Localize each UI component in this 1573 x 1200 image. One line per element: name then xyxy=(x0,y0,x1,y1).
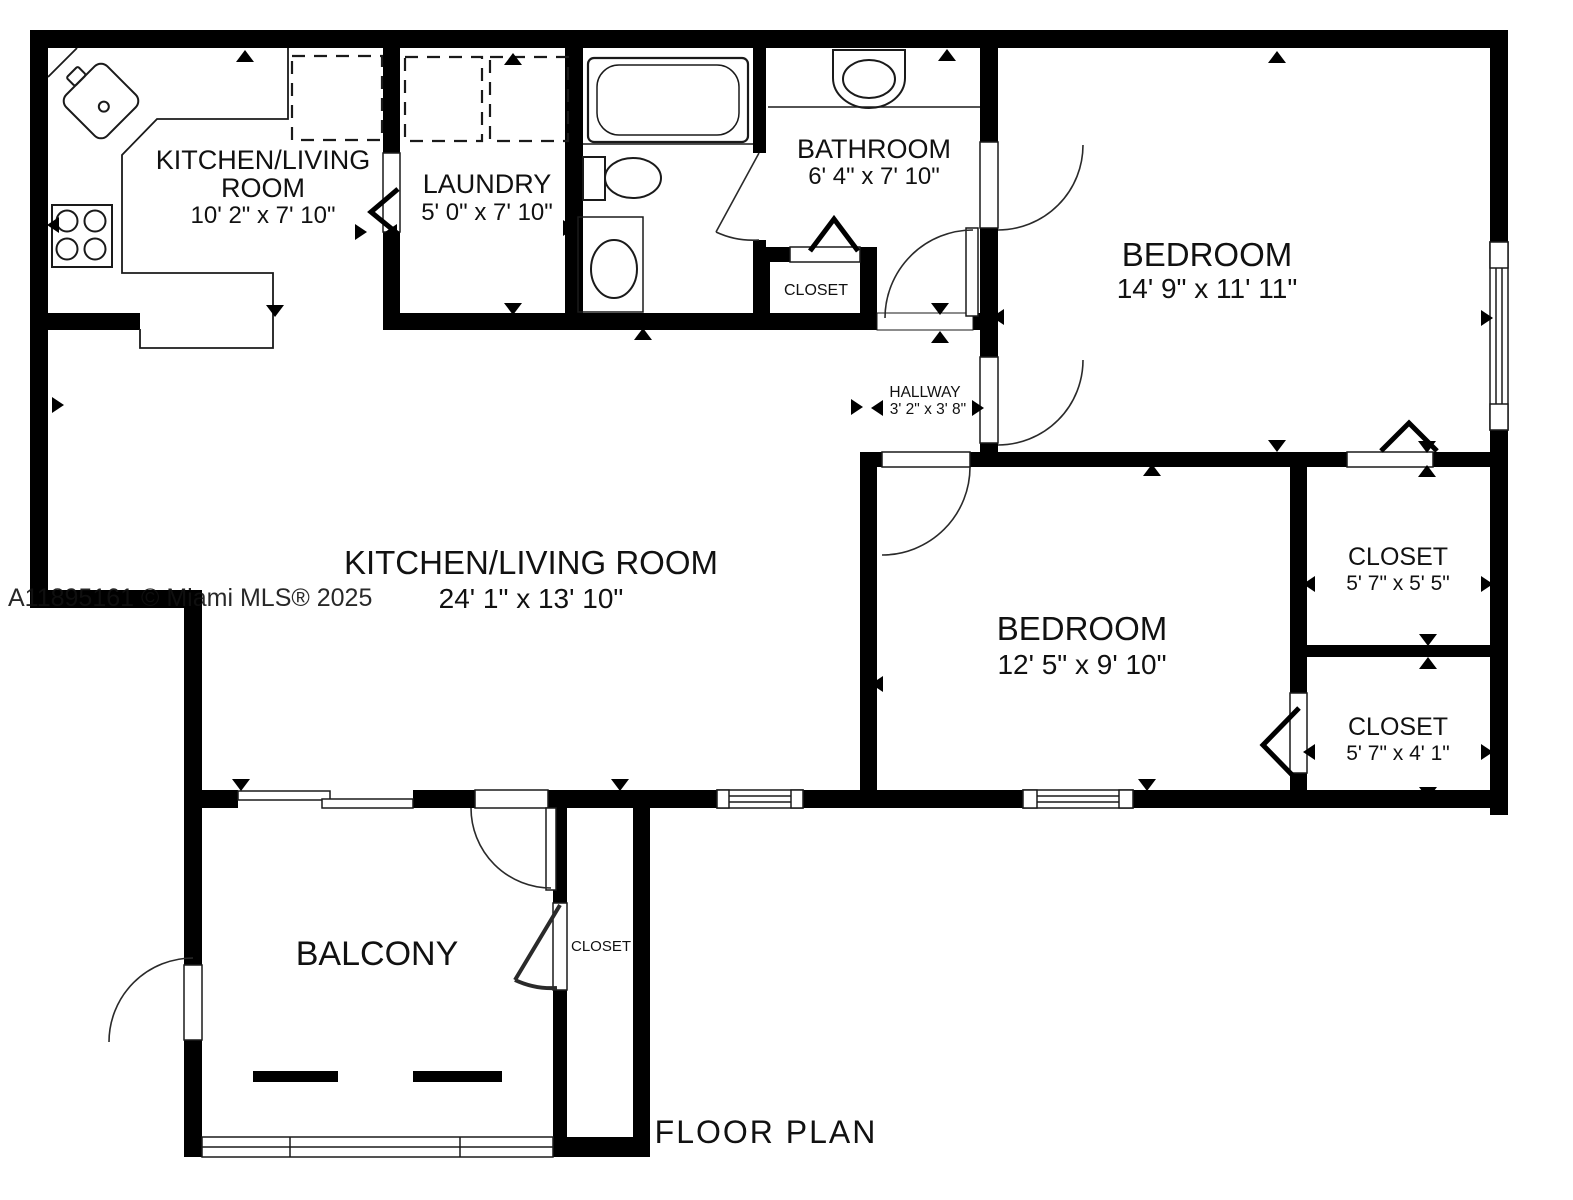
hallway-to-bedroom1-door xyxy=(980,357,998,443)
toilet-icon xyxy=(583,157,661,200)
refrigerator-icon xyxy=(292,56,382,140)
bathroom-doorway xyxy=(877,313,973,330)
bedroom1-dims: 14' 9" x 11' 11" xyxy=(1117,273,1298,304)
bathtub-icon xyxy=(588,58,748,142)
bathroom-door-leaf xyxy=(966,228,978,316)
balcony-label: BALCONY xyxy=(296,935,459,973)
mls-watermark: A11895161 © Miami MLS® 2025 xyxy=(8,584,372,612)
bathroom-label: BATHROOM xyxy=(797,134,951,164)
balcony-closet-label: CLOSET xyxy=(571,938,631,955)
dryer-icon xyxy=(490,57,568,141)
living-room-window xyxy=(717,790,803,808)
hallway-bedroom1-swing xyxy=(998,360,1083,445)
windows xyxy=(202,242,1508,1157)
floor-plan-page: KITCHEN/LIVING ROOM 10' 2" x 7' 10" LAUN… xyxy=(0,0,1573,1200)
stove-icon xyxy=(52,205,112,267)
kitchen-sink-icon xyxy=(52,52,143,143)
bathroom-to-bedroom1-door xyxy=(980,142,998,228)
tub-room-door xyxy=(716,153,759,240)
closet1-bifold-opening xyxy=(1347,452,1433,467)
balcony-side-door xyxy=(184,965,202,1040)
page-title: FLOOR PLAN xyxy=(655,1114,878,1150)
pedestal-sink-icon xyxy=(833,50,905,108)
balcony-sliding-door xyxy=(238,791,413,808)
balcony-side-door-swing xyxy=(109,958,193,1042)
kitchen-nook-dims: 10' 2" x 7' 10" xyxy=(191,202,336,229)
bathroom-closet-label: CLOSET xyxy=(784,282,848,299)
bedroom2-door-swing xyxy=(882,467,970,555)
bedroom2-dims: 12' 5" x 9' 10" xyxy=(997,649,1166,680)
appliance-dashed-boxes xyxy=(292,56,568,141)
closet2-door xyxy=(1290,693,1307,773)
bedroom2-label: BEDROOM xyxy=(997,610,1168,647)
kitchen-nook-label: KITCHEN/LIVING xyxy=(156,145,371,175)
bathroom-closet-bifold xyxy=(810,219,858,251)
bathroom-closet-opening xyxy=(790,247,860,262)
closet1-dims: 5' 7" x 5' 5" xyxy=(1346,572,1449,595)
washer-icon xyxy=(405,57,482,141)
living-room-label: KITCHEN/LIVING ROOM xyxy=(344,544,718,581)
closet2-dims: 5' 7" x 4' 1" xyxy=(1346,742,1449,765)
living-room-dims: 24' 1" x 13' 10" xyxy=(439,583,624,614)
balcony-door-swing xyxy=(471,808,551,888)
laundry-dims: 5' 0" x 7' 10" xyxy=(421,199,553,226)
hallway-label: HALLWAY xyxy=(889,384,960,401)
bathroom-bedroom1-swing xyxy=(998,145,1083,230)
floor-plan-canvas: KITCHEN/LIVING ROOM 10' 2" x 7' 10" LAUN… xyxy=(0,0,1573,1200)
bedroom2-window xyxy=(1023,790,1133,808)
bathroom-dims: 6' 4" x 7' 10" xyxy=(808,163,940,190)
vanity-sink-icon xyxy=(578,217,643,312)
laundry-label: LAUNDRY xyxy=(423,169,552,199)
bathroom-door-swing xyxy=(885,230,973,318)
balcony-rail-bars xyxy=(253,1071,502,1082)
hallway-dims: 3' 2" x 3' 8" xyxy=(890,401,966,418)
bedroom1-window xyxy=(1490,242,1508,430)
kitchen-nook-label2: ROOM xyxy=(221,173,305,203)
balcony-door-opening xyxy=(475,790,548,808)
closet2-label: CLOSET xyxy=(1348,713,1448,741)
closet1-label: CLOSET xyxy=(1348,543,1448,571)
balcony-door-leaf xyxy=(546,808,556,890)
bedroom1-label: BEDROOM xyxy=(1122,236,1293,273)
balcony-railing xyxy=(202,1137,553,1157)
bedroom2-door xyxy=(882,452,970,467)
